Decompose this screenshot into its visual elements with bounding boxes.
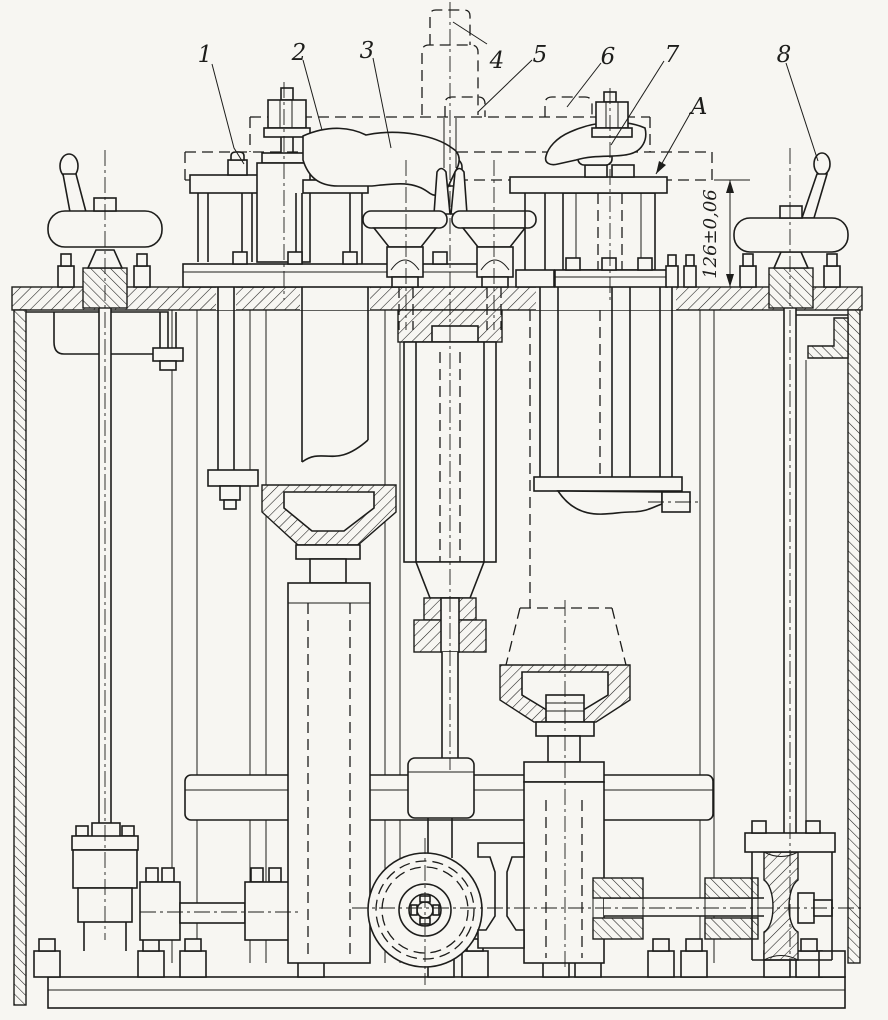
- callout-7: 7: [665, 42, 680, 68]
- dimension-text: 126±0,06: [700, 189, 721, 279]
- assembly-drawing: 126±0,06 1 2 3 4 5 6 7 A 8: [0, 0, 888, 1020]
- right-handle-lever: [802, 174, 827, 218]
- machine-table: [12, 287, 862, 310]
- drawing-sheet: 126±0,06 1 2 3 4 5 6 7 A 8: [0, 0, 888, 1020]
- view-label-a: A: [689, 94, 708, 120]
- callout-4: 4: [489, 48, 505, 74]
- callout-3: 3: [360, 38, 375, 64]
- right-guide-unit: [530, 287, 690, 608]
- left-handle-lever: [63, 174, 86, 212]
- base-plate: [48, 977, 845, 1008]
- callout-8: 8: [777, 42, 792, 68]
- right-clamp-unit: [510, 92, 696, 287]
- valve-support: [478, 843, 524, 948]
- callout-5: 5: [533, 42, 548, 68]
- callout-1: 1: [198, 42, 213, 68]
- right-handwheel: [734, 153, 848, 308]
- phantom-cone: [506, 608, 626, 665]
- left-broken-column: [300, 287, 370, 462]
- callout-2: 2: [291, 40, 307, 66]
- callout-6: 6: [601, 44, 616, 70]
